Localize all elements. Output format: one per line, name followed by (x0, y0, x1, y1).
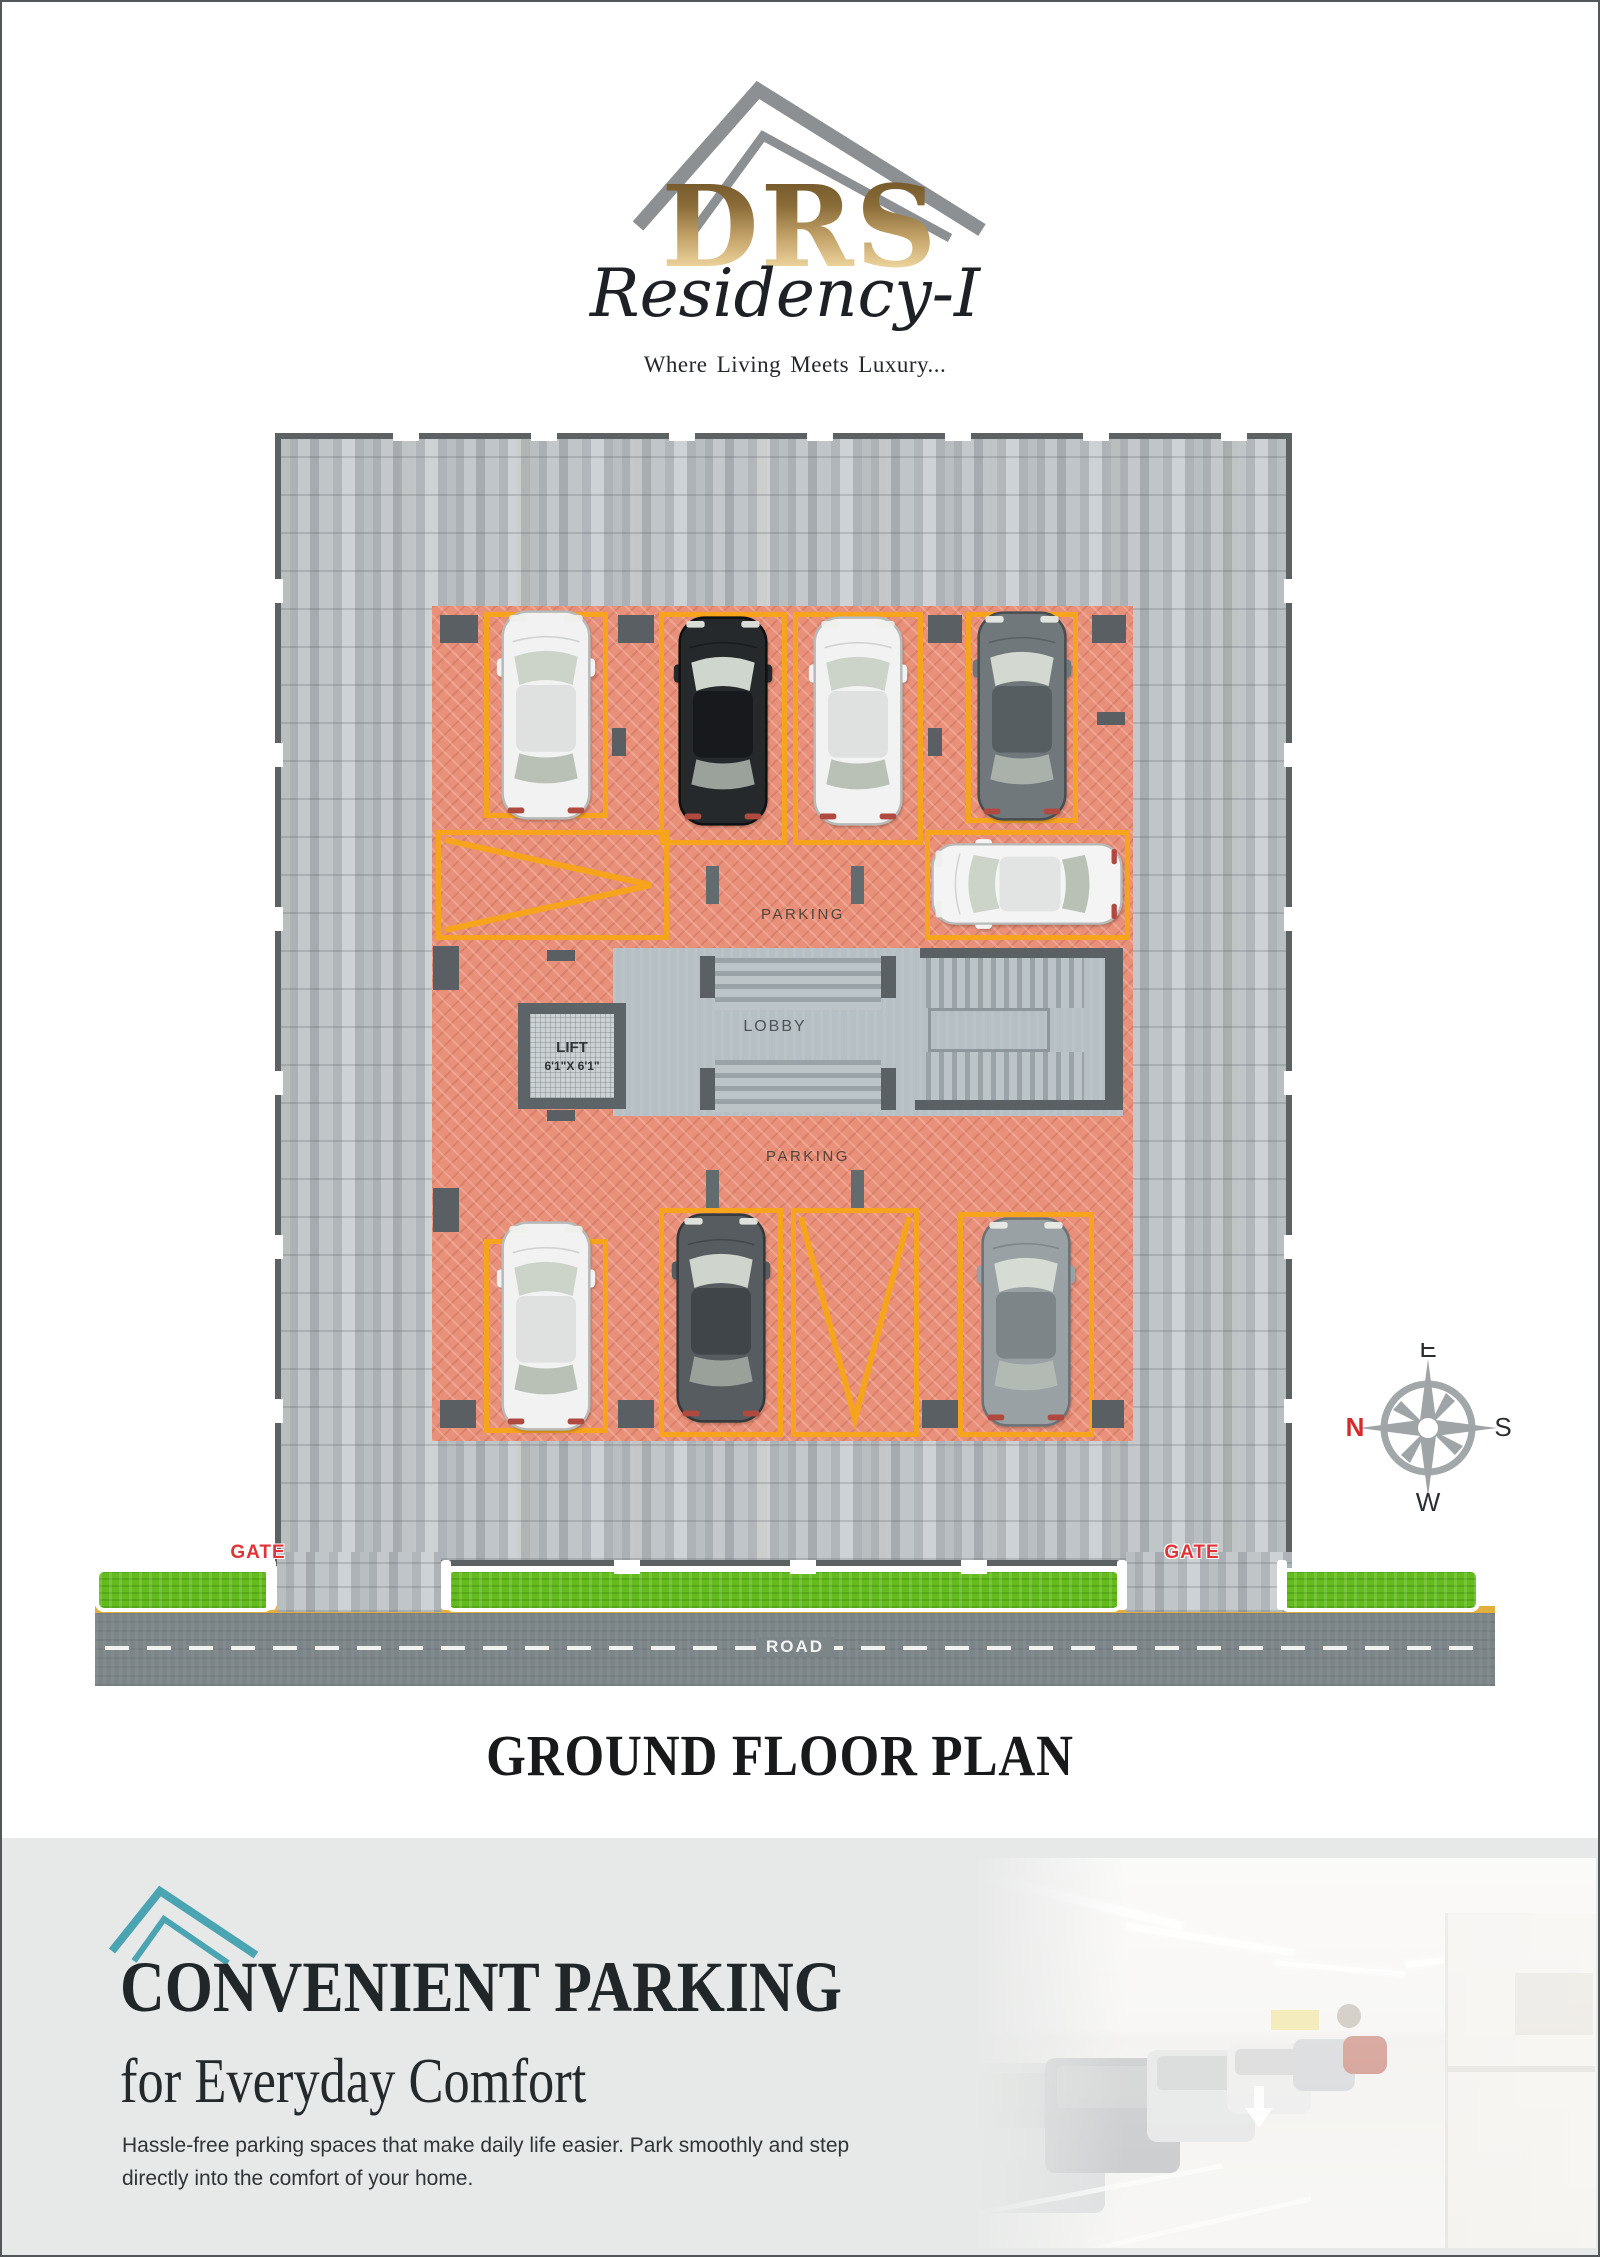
boundary-notch (790, 1560, 816, 1574)
pillar (928, 728, 942, 756)
pillar (433, 946, 459, 990)
gate-curb (266, 1560, 276, 1610)
car-white (496, 1214, 596, 1438)
staircase-lower-flight (926, 1052, 1084, 1100)
logo-residency-text: Residency-I (0, 258, 1570, 331)
pillar (928, 615, 962, 643)
pillar (1092, 615, 1126, 643)
compass-rose-icon: E S W N (1343, 1343, 1513, 1513)
lobby-entry-steps-top (715, 958, 881, 1010)
lobby-entry-steps-bottom (715, 1060, 881, 1112)
footer-heading: CONVENIENT PARKING (120, 1946, 842, 2029)
pillar (618, 1400, 654, 1428)
brochure-page: DRS Residency-I Where Living Meets Luxur… (0, 0, 1600, 2257)
pillar (612, 728, 626, 756)
grass-strip (1280, 1568, 1480, 1612)
car-white (808, 602, 908, 840)
pillar (547, 1110, 575, 1121)
lane-marker (706, 1170, 719, 1208)
road-label: ROAD (756, 1637, 834, 1657)
plot-border-notches-left (275, 439, 283, 1560)
parking-label-top: PARKING (733, 906, 873, 923)
lobby-label: LOBBY (715, 1018, 835, 1036)
footer-section: CONVENIENT PARKING for Everyday Comfort … (2, 1838, 1598, 2255)
compass-north: N (1346, 1412, 1365, 1442)
gate-curb (441, 1560, 451, 1610)
lift-size-label: 6'1"X 6'1" (544, 1059, 599, 1073)
car-gray (976, 1206, 1076, 1438)
gate-curb (1277, 1560, 1287, 1610)
lane-marker (706, 866, 719, 904)
footer-subheading: for Everyday Comfort (120, 2044, 586, 2118)
pillar (1092, 1400, 1124, 1428)
gate-curb (1117, 1560, 1127, 1610)
no-parking-marking (441, 835, 664, 935)
grass-strip (445, 1568, 1122, 1612)
lane-marker (851, 866, 864, 904)
step-side-wall (881, 1068, 896, 1110)
gate-label-left: GATE (203, 1542, 313, 1564)
staircase-wall (920, 948, 1123, 958)
pillar (922, 1400, 958, 1428)
grass-strip (95, 1568, 273, 1612)
boundary-notch (961, 1560, 987, 1574)
pillar (1097, 712, 1125, 725)
plot-border-notches-right (1284, 439, 1292, 1560)
footer-description: Hassle-free parking spaces that make dai… (122, 2130, 862, 2195)
lift-label: LIFT (556, 1039, 588, 1056)
step-side-wall (700, 956, 715, 998)
no-parking-marking (796, 1213, 914, 1432)
pillar (433, 1188, 459, 1232)
road: ROAD (95, 1613, 1495, 1686)
gate-label-right: GATE (1137, 1542, 1247, 1564)
staircase-landing (928, 1008, 1050, 1052)
parking-space-empty (791, 1208, 919, 1437)
boundary-notch (614, 1560, 640, 1574)
car-black (673, 602, 773, 840)
car-gray (972, 604, 1072, 828)
photo-fade-overlay (975, 1858, 1596, 2248)
staircase-wall (1105, 948, 1123, 1110)
compass-south: S (1494, 1412, 1511, 1442)
step-side-wall (881, 956, 896, 998)
lane-marker (851, 1170, 864, 1208)
plot-border-notches-top (281, 433, 1286, 441)
pillar (440, 1400, 476, 1428)
parking-space-empty (436, 830, 669, 940)
parking-garage-photo (975, 1858, 1596, 2248)
compass-east: E (1419, 1343, 1436, 1363)
car-white (496, 604, 596, 826)
lift-cabin: LIFT 6'1"X 6'1" (530, 1014, 614, 1098)
staircase-upper-flight (926, 958, 1084, 1008)
pillar (440, 615, 478, 643)
pillar (618, 615, 654, 643)
step-side-wall (700, 1068, 715, 1110)
plan-title: GROUND FLOOR PLAN (94, 1722, 1467, 1789)
car-white-horizontal (928, 836, 1126, 932)
compass-west: W (1416, 1487, 1441, 1513)
parking-label-bottom: PARKING (738, 1148, 878, 1165)
logo-tagline: Where Living Meets Luxury... (0, 352, 1590, 378)
staircase-wall (915, 1100, 1123, 1110)
pillar (547, 950, 575, 961)
car-dark-gray (671, 1200, 771, 1436)
